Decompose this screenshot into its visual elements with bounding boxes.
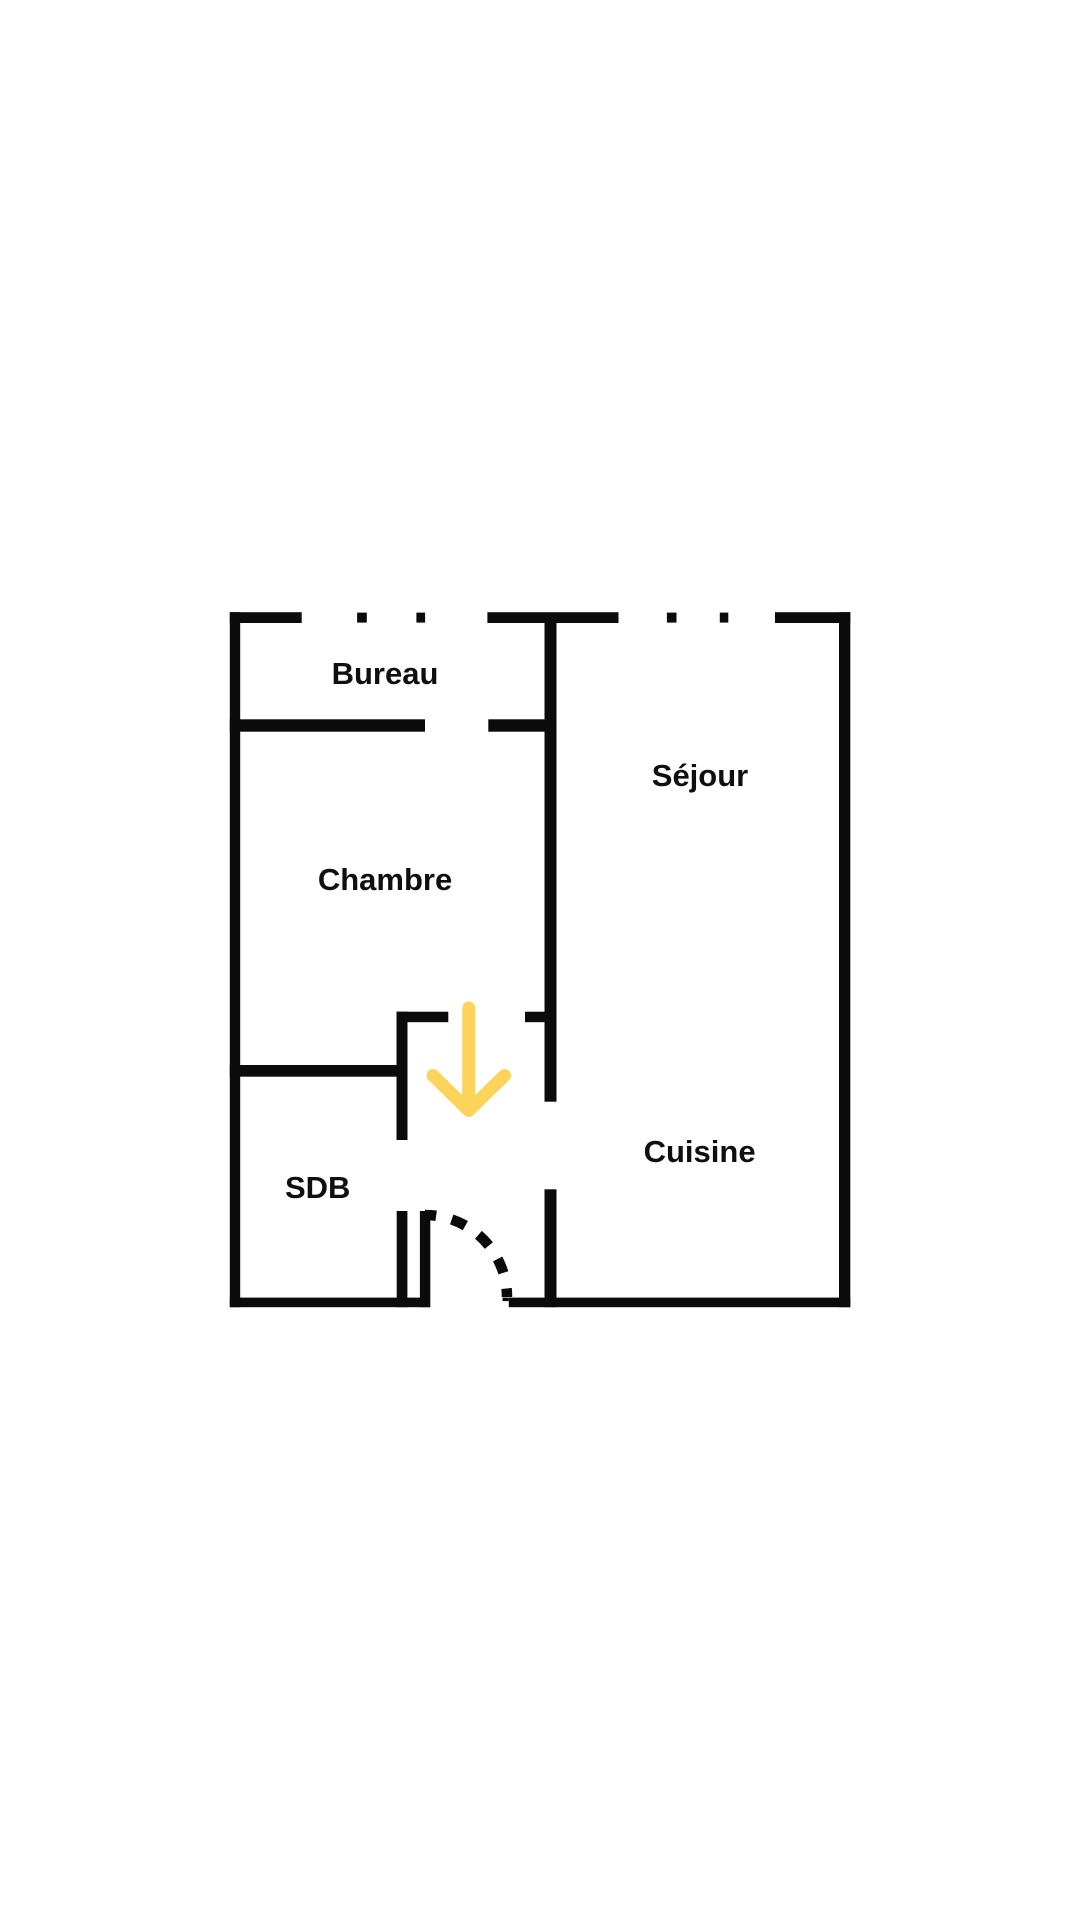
svg-text:Bureau: Bureau bbox=[332, 656, 439, 691]
svg-text:Cuisine: Cuisine bbox=[644, 1134, 756, 1169]
svg-text:Séjour: Séjour bbox=[652, 758, 748, 793]
svg-text:Chambre: Chambre bbox=[318, 862, 452, 897]
svg-text:SDB: SDB bbox=[285, 1170, 350, 1205]
